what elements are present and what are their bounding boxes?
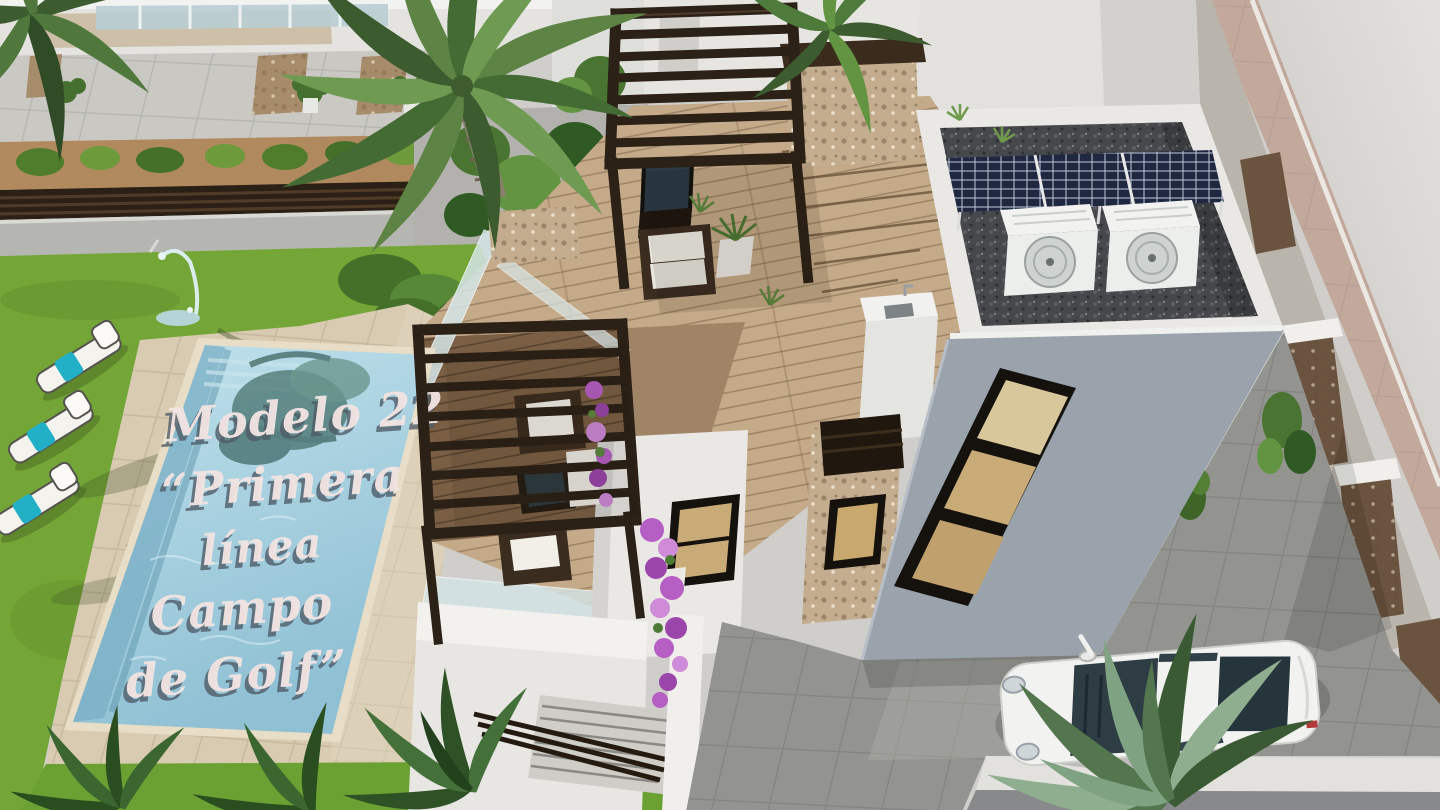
entry-wall-shade <box>1100 0 1200 106</box>
wicker-armchair <box>498 526 572 586</box>
ac-unit <box>1102 200 1200 292</box>
pergola-shadow <box>445 345 638 528</box>
stone-texture <box>488 206 580 264</box>
villa-render: Modelo 22 Modelo 22 “Primera “Primera lí… <box>0 0 1440 810</box>
pergola-shadow <box>640 162 832 314</box>
car-headlight <box>1016 743 1039 761</box>
stone-window-glass <box>833 503 878 561</box>
car-headlight <box>1002 676 1025 694</box>
overlay-line: línea <box>200 518 325 575</box>
lawn-shading <box>0 280 180 320</box>
ac-unit <box>1000 204 1098 296</box>
